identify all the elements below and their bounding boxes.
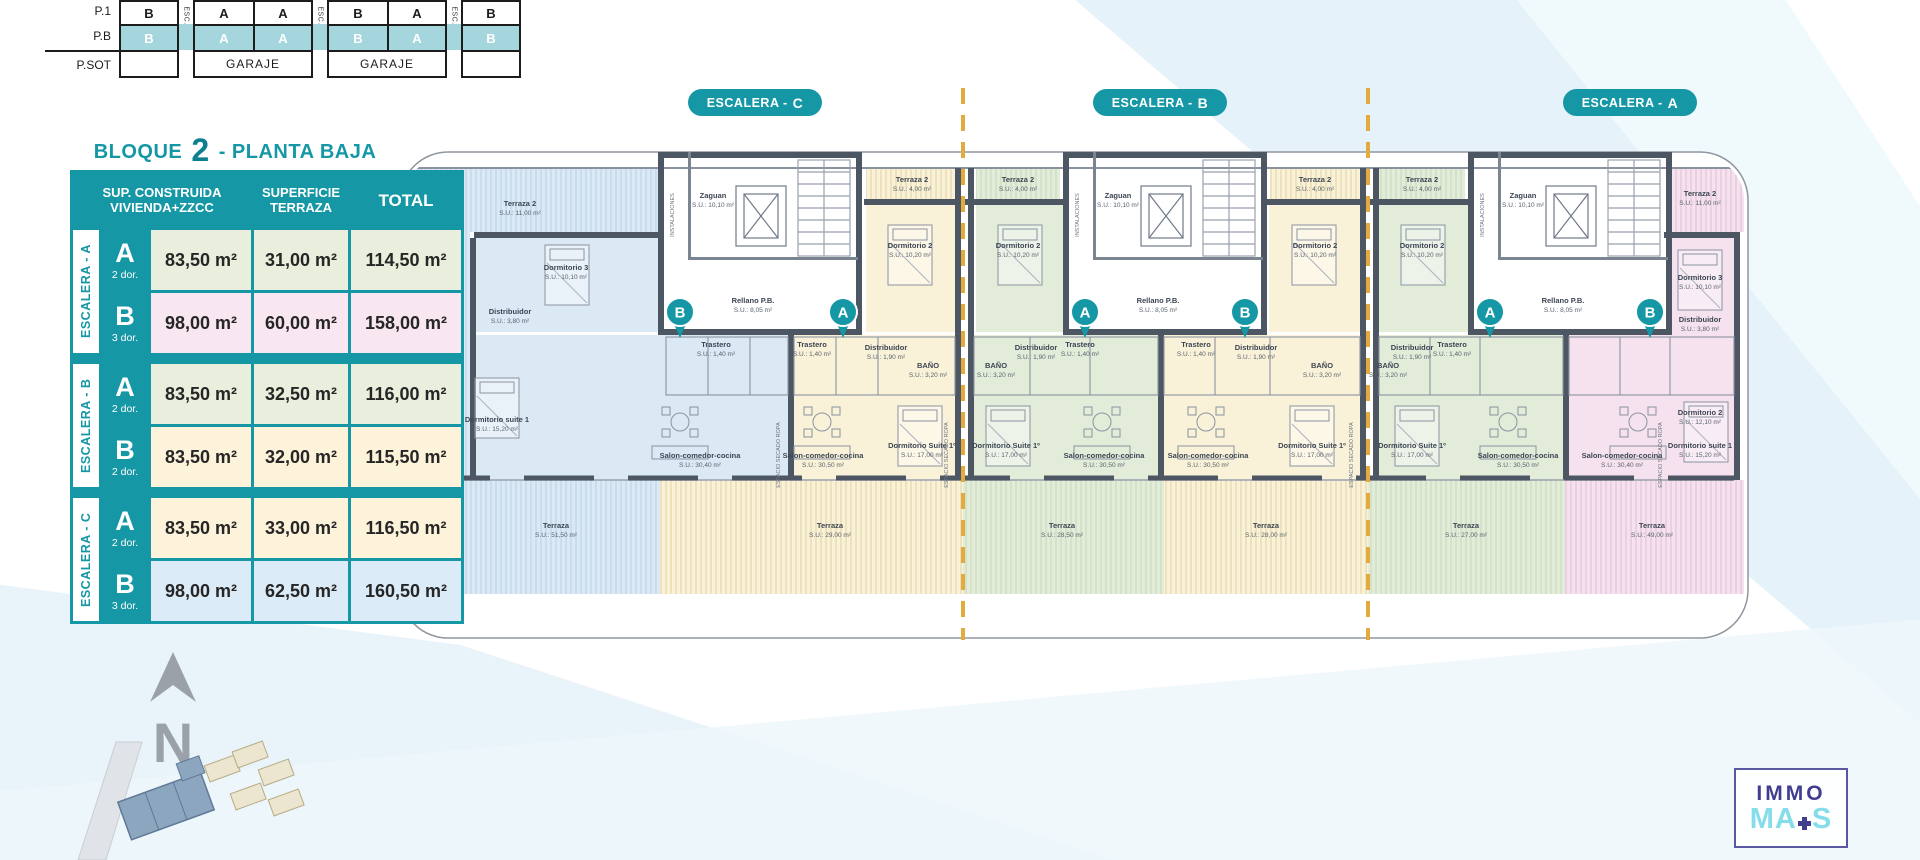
total-value: 116,50 m²: [351, 498, 461, 558]
terrace-value: 32,50 m²: [254, 364, 348, 424]
room-label: Dormitorio suite 1: [465, 415, 529, 424]
room-su: S.U.: 3,20 m²: [1369, 372, 1408, 379]
built-value: 83,50 m²: [151, 427, 251, 487]
terrace-value: 33,00 m²: [254, 498, 348, 558]
room-label: Dormitorio 3: [1678, 273, 1723, 282]
room-label: Salon-comedor-cocina: [1582, 451, 1664, 460]
room-label: Zaguan: [1510, 191, 1537, 200]
stack-cell: A: [195, 24, 253, 50]
room-label: Terraza 2: [1002, 175, 1034, 184]
room-label: Terraza 2: [1684, 189, 1716, 198]
room-label: Distribuidor: [1015, 343, 1058, 352]
room-su: S.U.: 30,40 m²: [679, 462, 722, 469]
room-su: S.U.: 1,90 m²: [1393, 354, 1432, 361]
room-su: S.U.: 10,10 m²: [1502, 202, 1545, 209]
room-su: S.U.: 3,80 m²: [491, 318, 530, 325]
room-su: S.U.: 3,20 m²: [1303, 372, 1342, 379]
room-su: S.U.: 11,00 m²: [1679, 200, 1721, 207]
room-label: ESPACIO SECADO ROPA: [776, 422, 782, 488]
unit-type-cell: A2 dor.: [102, 364, 148, 424]
room-label: Terraza: [1253, 521, 1280, 530]
unit-type-cell: A2 dor.: [102, 498, 148, 558]
room-su: S.U.: 10,20 m²: [1294, 252, 1337, 259]
stack-cell: A: [253, 24, 311, 50]
group-label-escalera-c: ESCALERA - C: [73, 498, 99, 621]
total-value: 158,00 m²: [351, 293, 461, 353]
room-label: Terraza: [1049, 521, 1076, 530]
stack-esc-column: ESC.: [179, 0, 193, 78]
room-su: S.U.: 4,00 m²: [893, 186, 932, 193]
total-value: 116,00 m²: [351, 364, 461, 424]
room-su: S.U.: 1,90 m²: [1017, 354, 1056, 361]
stack-cell: B: [463, 24, 519, 50]
room-su: S.U.: 30,50 m²: [802, 462, 845, 469]
room-su: S.U.: 49,00 m²: [1631, 532, 1674, 539]
room-su: S.U.: 10,20 m²: [889, 252, 932, 259]
room-label: Distribuidor: [1391, 343, 1434, 352]
room-su: S.U.: 1,40 m²: [1061, 351, 1100, 358]
pin-letter: A: [1080, 305, 1091, 322]
room-label: INSTALACIONES: [1075, 193, 1081, 237]
room-su: S.U.: 12,10 m²: [1679, 419, 1722, 426]
room-label: Dormitorio 2: [1293, 241, 1338, 250]
room-label: Trastero: [701, 340, 731, 349]
compass: N: [150, 652, 196, 774]
page-title: BLOQUE 2 - PLANTA BAJA: [75, 132, 395, 169]
stack-cell: A: [195, 2, 253, 24]
room-su: S.U.: 1,90 m²: [1237, 354, 1276, 361]
stack-row-label: P.1: [45, 0, 119, 22]
room-label: Dormitorio 3: [544, 263, 589, 272]
title-word: BLOQUE: [94, 141, 183, 163]
pill-escalera-b: ESCALERA -B: [1093, 89, 1227, 116]
esc-label: ESC.: [183, 6, 190, 24]
room-su: S.U.: 17,00 m²: [1391, 452, 1434, 459]
pin-letter: B: [675, 305, 686, 322]
room-label: Distribuidor: [1679, 315, 1722, 324]
stack-cell: B: [463, 2, 519, 24]
stack-cell: [121, 50, 177, 76]
room-label: BAÑO: [917, 361, 939, 370]
group-label-escalera-b: ESCALERA - B: [73, 364, 99, 487]
stack-block-3: B A B A GARAJE: [327, 0, 447, 78]
room-su: S.U.: 30,40 m²: [1601, 462, 1644, 469]
garaje-cell: GARAJE: [329, 50, 445, 76]
room-label: Distribuidor: [865, 343, 908, 352]
room-su: S.U.: 10,10 m²: [1679, 284, 1722, 291]
unit-type-cell: B3 dor.: [102, 293, 148, 353]
room-label: Terraza 2: [896, 175, 928, 184]
room-su: S.U.: 30,50 m²: [1497, 462, 1540, 469]
stack-cell: B: [329, 24, 387, 50]
garaje-cell: GARAJE: [195, 50, 311, 76]
logo-mas: MAS: [1750, 805, 1832, 833]
room-su: S.U.: 29,00 m²: [809, 532, 852, 539]
group-divider: [73, 490, 461, 495]
stack-block-4: B B: [461, 0, 521, 78]
room-su: S.U.: 8,05 m²: [1544, 307, 1583, 314]
stack-row-labels: P.1 P.B P.SOT: [45, 0, 119, 78]
unit-type-cell: B2 dor.: [102, 427, 148, 487]
terrace-value: 62,50 m²: [254, 561, 348, 621]
pill-escalera-c: ESCALERA -C: [688, 89, 822, 116]
room-label: Rellano P.B.: [1542, 296, 1585, 305]
header-total: TOTAL: [351, 173, 461, 227]
room-su: S.U.: 3,20 m²: [977, 372, 1016, 379]
room-label: Distribuidor: [489, 307, 532, 316]
room-label: Distribuidor: [1235, 343, 1278, 352]
built-value: 83,50 m²: [151, 230, 251, 290]
room-su: S.U.: 1,40 m²: [1433, 351, 1472, 358]
room-label: Dormitorio 2: [1400, 241, 1445, 250]
room-su: S.U.: 1,40 m²: [1177, 351, 1216, 358]
esc-label: ESC.: [451, 6, 458, 24]
built-value: 98,00 m²: [151, 293, 251, 353]
built-value: 83,50 m²: [151, 498, 251, 558]
room-label: Zaguan: [1105, 191, 1132, 200]
room-su: S.U.: 3,20 m²: [909, 372, 948, 379]
stack-cell: B: [329, 2, 387, 24]
stack-block-2: A A A A GARAJE: [193, 0, 313, 78]
logo-immo: IMMO: [1756, 783, 1825, 805]
stack-row-label: P.B: [45, 22, 119, 50]
stack-cell: [463, 50, 519, 76]
room-su: S.U.: 10,20 m²: [1401, 252, 1444, 259]
room-label: Dormitorio 2: [888, 241, 933, 250]
room-su: S.U.: 10,10 m²: [692, 202, 735, 209]
room-label: Rellano P.B.: [732, 296, 775, 305]
room-su: S.U.: 17,00 m²: [985, 452, 1028, 459]
room-label: Salon-comedor-cocina: [660, 451, 742, 460]
room-su: S.U.: 11,00 m²: [499, 210, 541, 217]
room-label: Dormitorio 2: [1678, 408, 1723, 417]
terrace-value: 31,00 m²: [254, 230, 348, 290]
room-su: S.U.: 8,05 m²: [1139, 307, 1178, 314]
group-divider: [73, 356, 461, 361]
room-label: INSTALACIONES: [1480, 193, 1486, 237]
room-label: Trastero: [1437, 340, 1467, 349]
pin-letter: B: [1645, 305, 1656, 322]
room-label: Salon-comedor-cocina: [1478, 451, 1560, 460]
stack-cell: B: [121, 24, 177, 50]
room-su: S.U.: 28,00 m²: [1245, 532, 1288, 539]
room-label: Trastero: [1065, 340, 1095, 349]
room-su: S.U.: 8,05 m²: [734, 307, 773, 314]
room-label: BAÑO: [985, 361, 1007, 370]
north-arrow-icon: [150, 652, 196, 702]
room-label: Trastero: [1181, 340, 1211, 349]
pin-letter: A: [838, 305, 849, 322]
stack-cell: A: [387, 2, 445, 24]
group-label-escalera-a: ESCALERA - A: [73, 230, 99, 353]
site-other-buildings: [204, 741, 304, 816]
room-label: ESPACIO SECADO ROPA: [1349, 422, 1355, 488]
room-su: S.U.: 15,20 m²: [1679, 452, 1722, 459]
room-su: S.U.: 3,80 m²: [1681, 326, 1720, 333]
room-label: ESPACIO SECADO ROPA: [1658, 422, 1664, 488]
terrace-value: 32,00 m²: [254, 427, 348, 487]
room-label: Salon-comedor-cocina: [1168, 451, 1250, 460]
room-label: Terraza: [1639, 521, 1666, 530]
room-label: Salon-comedor-cocina: [1064, 451, 1146, 460]
room-su: S.U.: 28,50 m²: [1041, 532, 1084, 539]
room-label: INSTALACIONES: [670, 193, 676, 237]
room-label: Terraza 2: [504, 199, 536, 208]
room-su: S.U.: 10,20 m²: [997, 252, 1040, 259]
title-number: 2: [188, 132, 212, 168]
built-value: 98,00 m²: [151, 561, 251, 621]
stack-row-label: P.SOT: [45, 50, 119, 78]
room-su: S.U.: 30,50 m²: [1083, 462, 1126, 469]
room-label: Terraza: [1453, 521, 1480, 530]
header-built: SUP. CONSTRUIDAVIVIENDA+ZZCC: [73, 173, 251, 227]
title-rest: - PLANTA BAJA: [219, 141, 377, 163]
room-label: BAÑO: [1377, 361, 1399, 370]
room-label: Terraza: [817, 521, 844, 530]
terrace-value: 60,00 m²: [254, 293, 348, 353]
immomas-logo: IMMO MAS: [1734, 768, 1848, 848]
unit-type-cell: B3 dor.: [102, 561, 148, 621]
room-label: Dormitorio 2: [996, 241, 1041, 250]
room-label: Dormitorio Suite 1º: [1278, 441, 1346, 450]
room-label: Terraza 2: [1406, 175, 1438, 184]
room-su: S.U.: 17,00 m²: [1291, 452, 1334, 459]
stack-cell: A: [253, 2, 311, 24]
stack-esc-column: ESC.: [313, 0, 327, 78]
room-label: ESPACIO SECADO ROPA: [944, 422, 950, 488]
room-label: Rellano P.B.: [1137, 296, 1180, 305]
room-label: Dormitorio Suite 1º: [1378, 441, 1446, 450]
stack-cell: B: [121, 2, 177, 24]
surface-table: SUP. CONSTRUIDAVIVIENDA+ZZCC SUPERFICIET…: [70, 170, 464, 624]
stack-block-1: B B: [119, 0, 179, 78]
header-terrace: SUPERFICIETERRAZA: [254, 173, 348, 227]
pill-escalera-a: ESCALERA -A: [1563, 89, 1697, 116]
pin-letter: A: [1485, 305, 1496, 322]
room-label: BAÑO: [1311, 361, 1333, 370]
page: Terraza 2 S.U.: 11,00 m² Dormitorio 3 S.…: [0, 0, 1920, 860]
room-su: S.U.: 51,50 m²: [535, 532, 578, 539]
stack-cell: A: [387, 24, 445, 50]
room-su: S.U.: 4,00 m²: [999, 186, 1038, 193]
site-map: [78, 741, 304, 860]
room-su: S.U.: 1,40 m²: [697, 351, 736, 358]
room-label: Terraza: [543, 521, 570, 530]
room-su: S.U.: 15,20 m²: [476, 426, 519, 433]
total-value: 160,50 m²: [351, 561, 461, 621]
total-value: 115,50 m²: [351, 427, 461, 487]
total-value: 114,50 m²: [351, 230, 461, 290]
room-su: S.U.: 4,00 m²: [1403, 186, 1442, 193]
room-su: S.U.: 10,10 m²: [1097, 202, 1140, 209]
plus-icon: [1798, 817, 1811, 830]
room-su: S.U.: 30,50 m²: [1187, 462, 1230, 469]
room-su: S.U.: 1,40 m²: [793, 351, 832, 358]
built-value: 83,50 m²: [151, 364, 251, 424]
room-label: Salon-comedor-cocina: [783, 451, 865, 460]
unit-type-cell: A2 dor.: [102, 230, 148, 290]
room-su: S.U.: 10,10 m²: [545, 274, 588, 281]
building-stack-diagram: P.1 P.B P.SOT B B ESC. A A A A GARAJE ES…: [45, 0, 521, 78]
room-su: S.U.: 27,00 m²: [1445, 532, 1488, 539]
stack-esc-column: ESC.: [447, 0, 461, 78]
pin-letter: B: [1240, 305, 1251, 322]
room-label: Trastero: [797, 340, 827, 349]
room-label: Dormitorio Suite 1º: [972, 441, 1040, 450]
room-label: Dormitorio suite 1: [1668, 441, 1732, 450]
room-su: S.U.: 4,00 m²: [1296, 186, 1335, 193]
room-label: Terraza 2: [1299, 175, 1331, 184]
room-label: Zaguan: [700, 191, 727, 200]
esc-label: ESC.: [317, 6, 324, 24]
room-su: S.U.: 17,00 m²: [901, 452, 944, 459]
room-su: S.U.: 1,90 m²: [867, 354, 906, 361]
